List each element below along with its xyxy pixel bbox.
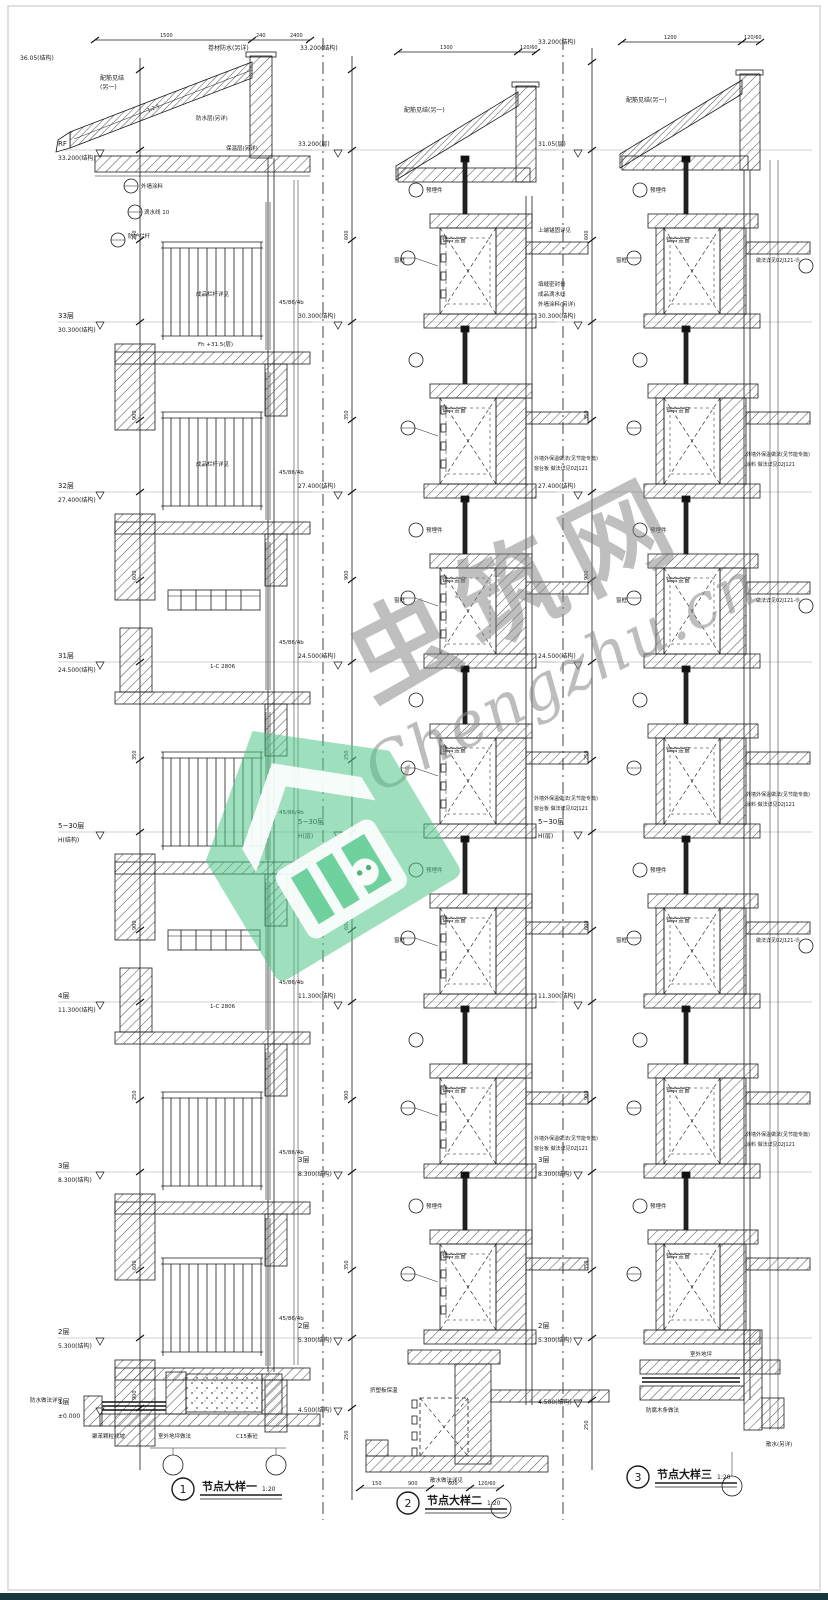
roof-note: 配筋见结(另一) (626, 96, 667, 104)
note-blk3: 外墙涂料(另详) (538, 300, 575, 308)
ground-note-3: 散水(另详) (766, 1440, 792, 1448)
svg-text:120/60: 120/60 (744, 35, 762, 41)
svg-text:1300: 1300 (440, 45, 453, 51)
svg-text:做法详见02J121-Ⓑ: 做法详见02J121-Ⓑ (756, 597, 800, 604)
svg-text:4层: 4层 (58, 992, 69, 1000)
ground-note-3: C15素砼 (236, 1432, 258, 1440)
ground-note-2: 室外地坪做法 (158, 1432, 192, 1440)
svg-text:4.500(结构): 4.500(结构) (538, 1398, 572, 1406)
svg-text:4.500(结构): 4.500(结构) (298, 1406, 332, 1414)
svg-text:±0.000: ±0.000 (58, 1413, 80, 1420)
eave-note-2: 防水层(另详) (196, 114, 228, 122)
eave-note-3: 保温层(另详) (226, 144, 258, 152)
svg-text:11.300(结构): 11.300(结构) (538, 992, 576, 1000)
svg-text:做法详见02J121-Ⓑ: 做法详见02J121-Ⓑ (756, 937, 800, 944)
svg-text:900: 900 (584, 1090, 590, 1100)
drip-note: 滴水线 10 (144, 208, 170, 216)
svg-text:120/60: 120/60 (520, 45, 538, 51)
svg-text:33层: 33层 (58, 312, 74, 320)
svg-text:1200: 1200 (664, 35, 677, 41)
ground-note-1: 防腐木条做法 (646, 1406, 680, 1414)
level-triangles-right (574, 150, 582, 1407)
svg-text:45/86/4b: 45/86/4b (279, 980, 304, 986)
svg-text:外墙外保温做法(见节能专篇): 外墙外保温做法(见节能专篇) (534, 1135, 598, 1142)
svg-text:600: 600 (448, 1481, 458, 1487)
title-label: 节点大样二 (427, 1493, 482, 1507)
embed-labels-mid: 预埋件 预埋件 预埋件 预埋件 (426, 186, 443, 1210)
level-markers-mid: 33.200(层) 30.300(结构) 27.400(结构) 24.500(结… (298, 141, 336, 1414)
svg-text:铝合金窗: 铝合金窗 (442, 1252, 466, 1260)
svg-text:预埋件: 预埋件 (650, 526, 667, 534)
louver-note: 1-C 2806 (210, 664, 236, 670)
roof-note2: (另一) (100, 84, 117, 91)
chain-dims-right: 600 350 900 250 600 900 350 250 (584, 230, 590, 1430)
svg-text:外墙外保温做法(见节能专篇): 外墙外保温做法(见节能专篇) (746, 451, 810, 458)
svg-text:600: 600 (132, 570, 138, 580)
svg-text:24.500(结构): 24.500(结构) (58, 666, 96, 674)
level-markers-right: 31.05(层) 30.300(结构) 27.400(结构) 24.500(结构… (538, 141, 576, 1406)
svg-text:120/60: 120/60 (478, 1481, 496, 1487)
svg-text:窗框: 窗框 (616, 256, 628, 264)
svg-text:外墙外保温做法(见节能专篇): 外墙外保温做法(见节能专篇) (534, 455, 598, 462)
svg-text:5~30层: 5~30层 (58, 822, 84, 830)
svg-text:窗框: 窗框 (394, 596, 406, 604)
svg-text:窗台板 做法详见02J121: 窗台板 做法详见02J121 (534, 465, 588, 472)
detail-1-section (56, 37, 320, 1475)
svg-text:45/86/4b: 45/86/4b (279, 300, 304, 306)
detail-2-texts: 33.200(结构) 33.200(层) 30.300(结构) 27.400(结… (298, 44, 598, 1487)
svg-text:预埋件: 预埋件 (426, 866, 443, 874)
svg-text:3层: 3层 (538, 1156, 549, 1164)
title-label: 节点大样一 (202, 1479, 257, 1493)
ground-note-2: 室外地坪 (690, 1350, 713, 1358)
grid-bubble (266, 1455, 286, 1475)
ground-note-2: 散水做法详见 (430, 1476, 464, 1484)
svg-text:外墙外保温做法(见节能专篇): 外墙外保温做法(见节能专篇) (746, 1131, 810, 1138)
rail-ref: 成品栏杆详见 (196, 290, 230, 298)
svg-text:900: 900 (408, 1481, 418, 1487)
svg-text:涂料 做法详见02J121: 涂料 做法详见02J121 (746, 1141, 795, 1148)
svg-text:900: 900 (344, 570, 350, 580)
svg-text:预埋件: 预埋件 (426, 186, 443, 194)
ground-note-1: 聚苯颗粒找坡 (92, 1432, 126, 1440)
svg-text:900: 900 (132, 920, 138, 930)
detail-1-texts: 36.05(结构) RF 33.200(结构) 33层 30.300(结构) 3… (20, 33, 304, 1440)
title-detail-3: 3 节点大样三 1:20 (627, 1466, 737, 1488)
svg-text:5.300(结构): 5.300(结构) (298, 1336, 332, 1344)
title-detail-2: 2 节点大样二 1:20 (397, 1492, 507, 1514)
svg-text:2400: 2400 (290, 33, 303, 39)
svg-text:31层: 31层 (58, 652, 74, 660)
svg-text:2层: 2层 (58, 1328, 69, 1336)
svg-text:H(层): H(层) (538, 833, 553, 840)
svg-text:600: 600 (584, 230, 590, 240)
svg-text:外墙外保温做法(见节能专篇): 外墙外保温做法(见节能专篇) (746, 791, 810, 798)
frame-labels-right: 窗框 窗框 窗框 (616, 256, 628, 944)
svg-text:铝合金窗: 铝合金窗 (666, 236, 690, 244)
svg-text:600: 600 (132, 1260, 138, 1270)
svg-text:铝合金窗: 铝合金窗 (442, 746, 466, 754)
svg-text:8.300(结构): 8.300(结构) (58, 1176, 92, 1184)
eave-note-1: 卷材防水(另详) (208, 44, 249, 52)
svg-text:250: 250 (132, 1090, 138, 1100)
top-dims-right: 1200 120/60 (664, 35, 762, 41)
svg-text:窗框: 窗框 (394, 256, 406, 264)
svg-text:铝合金窗: 铝合金窗 (442, 1086, 466, 1094)
svg-text:150: 150 (372, 1481, 382, 1487)
top-elevation: 33.200(结构) (300, 44, 338, 52)
svg-text:900: 900 (132, 1390, 138, 1400)
cad-drawing: 36.05(结构) RF 33.200(结构) 33层 30.300(结构) 3… (0, 0, 828, 1600)
louver-note: 1-C 2806 (210, 1004, 236, 1010)
svg-text:1500: 1500 (160, 33, 173, 39)
svg-text:窗框: 窗框 (394, 936, 406, 944)
drawing-sheet: 36.05(结构) RF 33.200(结构) 33层 30.300(结构) 3… (0, 0, 828, 1600)
svg-text:600: 600 (344, 920, 350, 930)
svg-text:45/86/4b: 45/86/4b (279, 810, 304, 816)
svg-text:铝合金窗: 铝合金窗 (442, 916, 466, 924)
level-triangles (96, 150, 104, 1415)
svg-text:900: 900 (344, 1090, 350, 1100)
ref-bubbles-right (799, 259, 813, 953)
svg-text:250: 250 (344, 750, 350, 760)
grid-bubble (163, 1455, 183, 1475)
svg-text:窗框: 窗框 (616, 936, 628, 944)
svg-text:5.300(结构): 5.300(结构) (58, 1342, 92, 1350)
svg-text:27.400(结构): 27.400(结构) (298, 482, 336, 490)
svg-text:铝合金窗: 铝合金窗 (666, 916, 690, 924)
note-blk1: 填缝密封膏 (538, 280, 566, 288)
svg-text:27.400(结构): 27.400(结构) (58, 496, 96, 504)
note-blk2: 成品滴水线 (538, 290, 566, 298)
svg-text:窗台板 做法详见02J121: 窗台板 做法详见02J121 (534, 805, 588, 812)
title-scale: 1:20 (487, 1500, 501, 1507)
level-triangles-mid (334, 150, 342, 1415)
level-note: Fh +31.5(层) (198, 341, 233, 348)
svg-text:24.500(结构): 24.500(结构) (538, 652, 576, 660)
svg-text:32层: 32层 (58, 482, 74, 490)
svg-text:31.05(层): 31.05(层) (538, 141, 566, 148)
svg-text:250: 250 (584, 750, 590, 760)
svg-text:600: 600 (584, 920, 590, 930)
svg-text:铝合金窗: 铝合金窗 (442, 406, 466, 414)
svg-text:5~30层: 5~30层 (298, 818, 324, 826)
svg-text:5.300(结构): 5.300(结构) (538, 1336, 572, 1344)
title-detail-1: 1 节点大样一 1:20 (172, 1478, 282, 1500)
svg-text:350: 350 (344, 410, 350, 420)
roof-note: 配筋见结 (100, 74, 124, 82)
svg-text:涂料 做法详见02J121: 涂料 做法详见02J121 (746, 801, 795, 808)
svg-text:30.300(结构): 30.300(结构) (58, 326, 96, 334)
svg-text:30.300(结构): 30.300(结构) (538, 312, 576, 320)
svg-text:铝合金窗: 铝合金窗 (666, 406, 690, 414)
svg-text:250: 250 (344, 1430, 350, 1440)
svg-text:铝合金窗: 铝合金窗 (442, 236, 466, 244)
svg-text:350: 350 (132, 750, 138, 760)
svg-text:2层: 2层 (538, 1322, 549, 1330)
title-num: 1 (180, 1483, 187, 1496)
title-label: 节点大样三 (657, 1467, 712, 1481)
embed-callouts (409, 183, 423, 1213)
ground-note-1: 挤塑板保温 (370, 1386, 398, 1394)
top-elevation: 36.05(结构) (20, 54, 54, 62)
svg-text:铝合金窗: 铝合金窗 (666, 746, 690, 754)
svg-text:预埋件: 预埋件 (426, 526, 443, 534)
svg-text:预埋件: 预埋件 (426, 1202, 443, 1210)
bottom-bar (0, 1593, 828, 1600)
top-dims-left: 1500 240 2400 (160, 33, 303, 39)
svg-text:预埋件: 预埋件 (650, 866, 667, 874)
svg-text:45/86/4b: 45/86/4b (279, 470, 304, 476)
chain-dims-mid: 600 350 900 250 600 900 350 250 (344, 230, 350, 1440)
title-scale: 1:20 (717, 1474, 731, 1481)
svg-text:900: 900 (132, 410, 138, 420)
svg-text:250: 250 (584, 1420, 590, 1430)
insul-notes-mid: 外墙外保温做法(见节能专篇) 窗台板 做法详见02J121 外墙外保温做法(见节… (534, 455, 598, 1152)
svg-text:2层: 2层 (298, 1322, 309, 1330)
svg-text:3层: 3层 (298, 1156, 309, 1164)
svg-text:铝合金窗: 铝合金窗 (666, 1086, 690, 1094)
title-scale: 1:20 (262, 1486, 276, 1493)
anchor-note: 上端锚固详见 (538, 226, 572, 234)
rail-guard-note: 防护栏杆 (128, 232, 151, 240)
ground-note-4: 防水做法详见 (30, 1396, 64, 1404)
svg-text:预埋件: 预埋件 (650, 186, 667, 194)
svg-text:8.300(结构): 8.300(结构) (298, 1170, 332, 1178)
svg-text:涂料 做法详见02J121: 涂料 做法详见02J121 (746, 461, 795, 468)
svg-text:做法详见02J121-Ⓑ: 做法详见02J121-Ⓑ (756, 257, 800, 264)
top-elevation: 33.200(结构) (538, 38, 576, 46)
top-dims-mid: 1300 120/60 (440, 45, 538, 51)
title-num: 3 (635, 1471, 642, 1484)
svg-text:11.300(结构): 11.300(结构) (298, 992, 336, 1000)
svg-text:窗框: 窗框 (616, 596, 628, 604)
svg-text:30.300(结构): 30.300(结构) (298, 312, 336, 320)
svg-text:11.300(结构): 11.300(结构) (58, 1006, 96, 1014)
svg-text:铝合金窗: 铝合金窗 (666, 576, 690, 584)
embed-callouts-right (633, 183, 647, 1213)
svg-text:外墙外保温做法(见节能专篇): 外墙外保温做法(见节能专篇) (534, 795, 598, 802)
svg-text:H(结构): H(结构) (58, 836, 79, 844)
paint-note: 外墙涂料 (141, 182, 164, 190)
svg-text:27.400(结构): 27.400(结构) (538, 482, 576, 490)
svg-text:H(层): H(层) (298, 833, 313, 840)
detail-titles: 1 节点大样一 1:20 2 节点大样二 1:20 3 节点大样三 1:20 (172, 1466, 737, 1514)
svg-text:350: 350 (344, 1260, 350, 1270)
svg-text:900: 900 (584, 570, 590, 580)
svg-text:预埋件: 预埋件 (650, 1202, 667, 1210)
svg-text:240: 240 (256, 33, 266, 39)
unit-ref-codes: 45/86/4b 45/86/4b 45/86/4b 45/86/4b 45/8… (279, 300, 304, 1322)
rail-ref: 成品栏杆详见 (196, 460, 230, 468)
embed-labels-right: 预埋件 预埋件 预埋件 预埋件 (650, 186, 667, 1210)
svg-text:铝合金窗: 铝合金窗 (666, 1252, 690, 1260)
svg-text:5~30层: 5~30层 (538, 818, 564, 826)
level-markers-left: RF 33.200(结构) 33层 30.300(结构) 32层 27.400(… (58, 140, 96, 1420)
svg-text:600: 600 (344, 230, 350, 240)
svg-text:3层: 3层 (58, 1162, 69, 1170)
svg-text:RF: RF (58, 140, 67, 148)
svg-text:33.200(层): 33.200(层) (298, 141, 330, 148)
frame-labels-mid: 窗框 窗框 窗框 (394, 256, 406, 944)
svg-text:45/86/4b: 45/86/4b (279, 640, 304, 646)
svg-text:8.300(结构): 8.300(结构) (538, 1170, 572, 1178)
title-num: 2 (405, 1497, 412, 1510)
svg-text:350: 350 (584, 1260, 590, 1270)
svg-text:窗台板 做法详见02J121: 窗台板 做法详见02J121 (534, 1145, 588, 1152)
svg-text:铝合金窗: 铝合金窗 (442, 576, 466, 584)
roof-note: 配筋见结(另一) (404, 106, 445, 114)
svg-text:350: 350 (584, 410, 590, 420)
svg-text:33.200(结构): 33.200(结构) (58, 154, 96, 162)
svg-text:24.500(结构): 24.500(结构) (298, 652, 336, 660)
